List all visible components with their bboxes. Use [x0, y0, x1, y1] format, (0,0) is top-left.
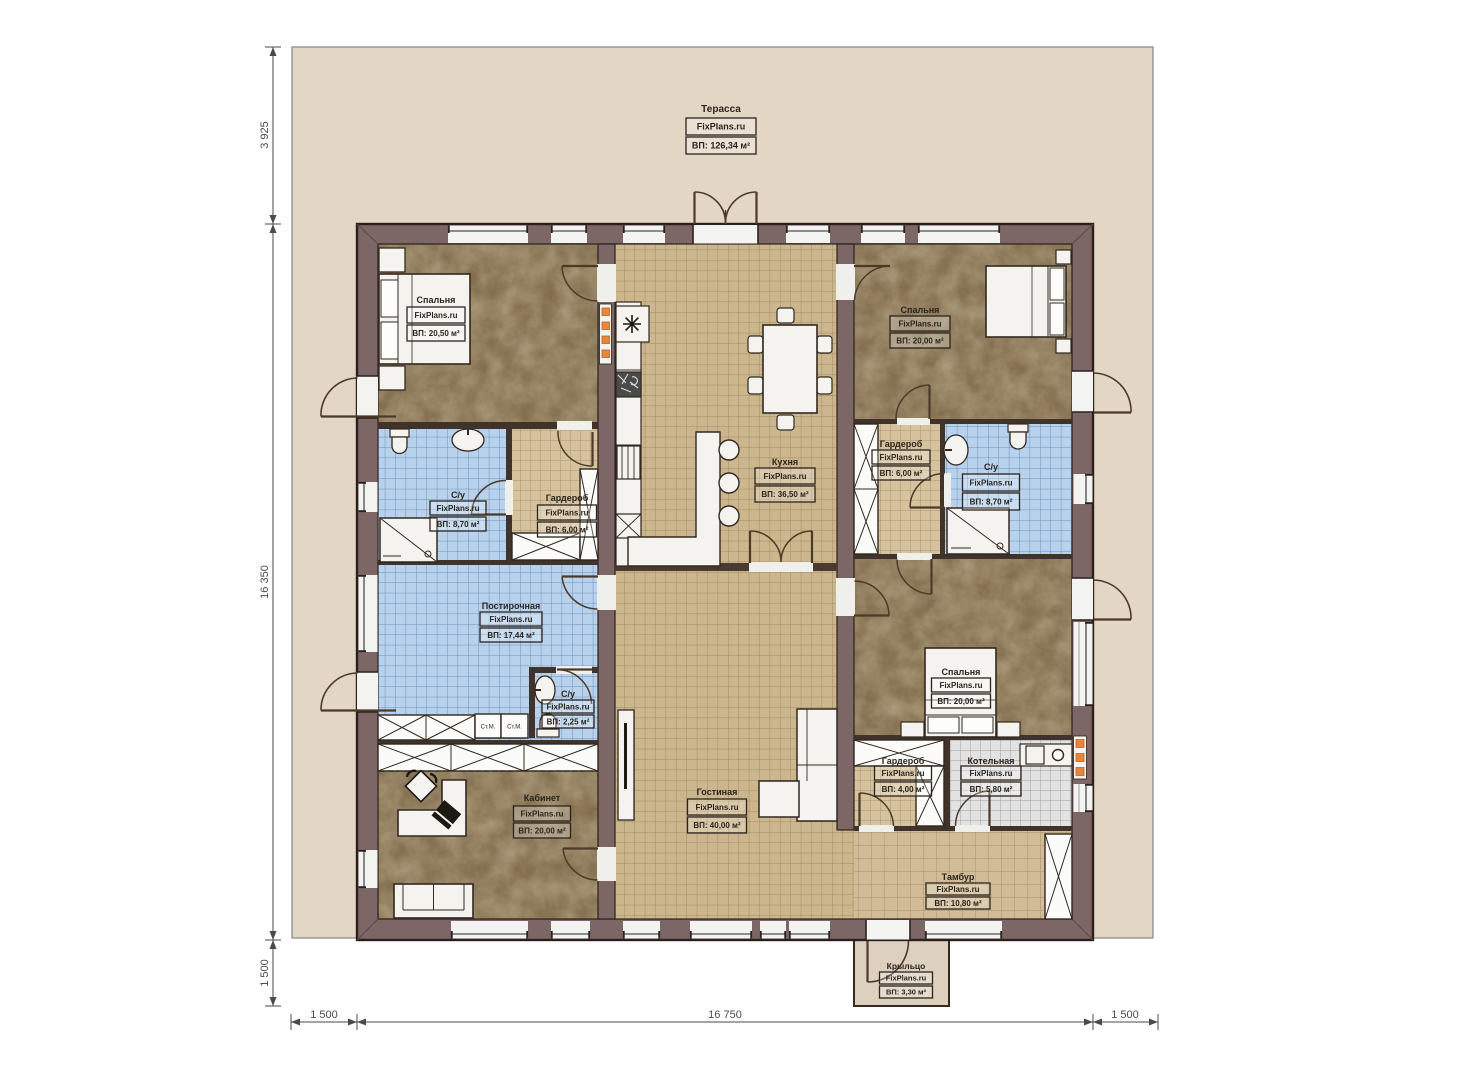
svg-text:ВП: 40,00 м²: ВП: 40,00 м² [693, 821, 741, 830]
svg-text:FixPlans.ru: FixPlans.ru [898, 319, 941, 328]
svg-text:ВП: 36,50 м²: ВП: 36,50 м² [761, 490, 809, 499]
svg-text:Ст.М.: Ст.М. [507, 725, 522, 731]
svg-text:ВП: 4,00 м²: ВП: 4,00 м² [882, 785, 925, 794]
svg-text:FixPlans.ru: FixPlans.ru [936, 885, 979, 894]
svg-text:Гардероб: Гардероб [882, 756, 925, 766]
svg-text:FixPlans.ru: FixPlans.ru [697, 122, 746, 132]
svg-text:FixPlans.ru: FixPlans.ru [969, 478, 1012, 487]
svg-text:ВП: 2,25 м²: ВП: 2,25 м² [547, 717, 590, 726]
svg-text:3 925: 3 925 [259, 121, 271, 149]
svg-text:ВП: 8,70 м²: ВП: 8,70 м² [970, 497, 1013, 506]
svg-text:FixPlans.ru: FixPlans.ru [545, 508, 588, 517]
svg-text:1 500: 1 500 [310, 1009, 338, 1021]
svg-text:ВП: 6,00 м²: ВП: 6,00 м² [880, 469, 923, 478]
svg-text:Кухня: Кухня [772, 457, 798, 467]
svg-text:ВП: 3,30 м²: ВП: 3,30 м² [886, 988, 927, 997]
svg-text:FixPlans.ru: FixPlans.ru [489, 615, 532, 624]
svg-text:Гостиная: Гостиная [697, 787, 738, 797]
svg-text:С/у: С/у [984, 462, 998, 472]
svg-text:FixPlans.ru: FixPlans.ru [881, 769, 924, 778]
svg-text:FixPlans.ru: FixPlans.ru [695, 803, 738, 812]
svg-text:Спальня: Спальня [942, 667, 981, 677]
svg-text:1 500: 1 500 [1111, 1009, 1139, 1021]
svg-text:Постирочная: Постирочная [482, 601, 540, 611]
svg-text:ВП: 6,00 м²: ВП: 6,00 м² [546, 525, 589, 534]
svg-text:С/у: С/у [561, 689, 575, 699]
svg-text:Спальня: Спальня [901, 305, 940, 315]
svg-text:FixPlans.ru: FixPlans.ru [414, 311, 457, 320]
svg-text:ВП: 20,00 м²: ВП: 20,00 м² [518, 826, 566, 835]
svg-text:ВП: 20,00 м²: ВП: 20,00 м² [937, 697, 985, 706]
svg-text:ВП: 20,50 м²: ВП: 20,50 м² [412, 329, 460, 338]
svg-text:16 350: 16 350 [259, 565, 271, 599]
svg-text:FixPlans.ru: FixPlans.ru [879, 453, 922, 462]
svg-text:Котельная: Котельная [967, 756, 1014, 766]
svg-text:16 750: 16 750 [708, 1009, 742, 1021]
svg-text:FixPlans.ru: FixPlans.ru [520, 809, 563, 818]
svg-text:FixPlans.ru: FixPlans.ru [886, 974, 927, 983]
svg-text:FixPlans.ru: FixPlans.ru [436, 504, 479, 513]
svg-text:Терасса: Терасса [701, 104, 741, 115]
svg-text:Спальня: Спальня [417, 295, 456, 305]
svg-text:FixPlans.ru: FixPlans.ru [546, 702, 589, 711]
svg-text:ВП: 17,44 м²: ВП: 17,44 м² [487, 631, 535, 640]
svg-text:ВП: 20,00 м²: ВП: 20,00 м² [896, 336, 944, 345]
svg-text:Кабинет: Кабинет [524, 793, 561, 803]
svg-text:Ст.М.: Ст.М. [481, 725, 496, 731]
svg-text:ВП: 126,34 м²: ВП: 126,34 м² [692, 141, 750, 151]
svg-text:Гардероб: Гардероб [546, 493, 589, 503]
svg-text:С/у: С/у [451, 490, 465, 500]
svg-text:Крыльцо: Крыльцо [887, 961, 926, 971]
svg-text:FixPlans.ru: FixPlans.ru [969, 769, 1012, 778]
svg-text:1 500: 1 500 [259, 959, 271, 987]
svg-text:FixPlans.ru: FixPlans.ru [939, 681, 982, 690]
svg-text:ВП: 10,80 м²: ВП: 10,80 м² [934, 899, 982, 908]
svg-text:FixPlans.ru: FixPlans.ru [763, 472, 806, 481]
svg-text:ВП: 8,70 м²: ВП: 8,70 м² [437, 520, 480, 529]
svg-text:Гардероб: Гардероб [880, 439, 923, 449]
svg-text:Тамбур: Тамбур [942, 872, 975, 882]
svg-text:ВП: 5,80 м²: ВП: 5,80 м² [970, 785, 1013, 794]
